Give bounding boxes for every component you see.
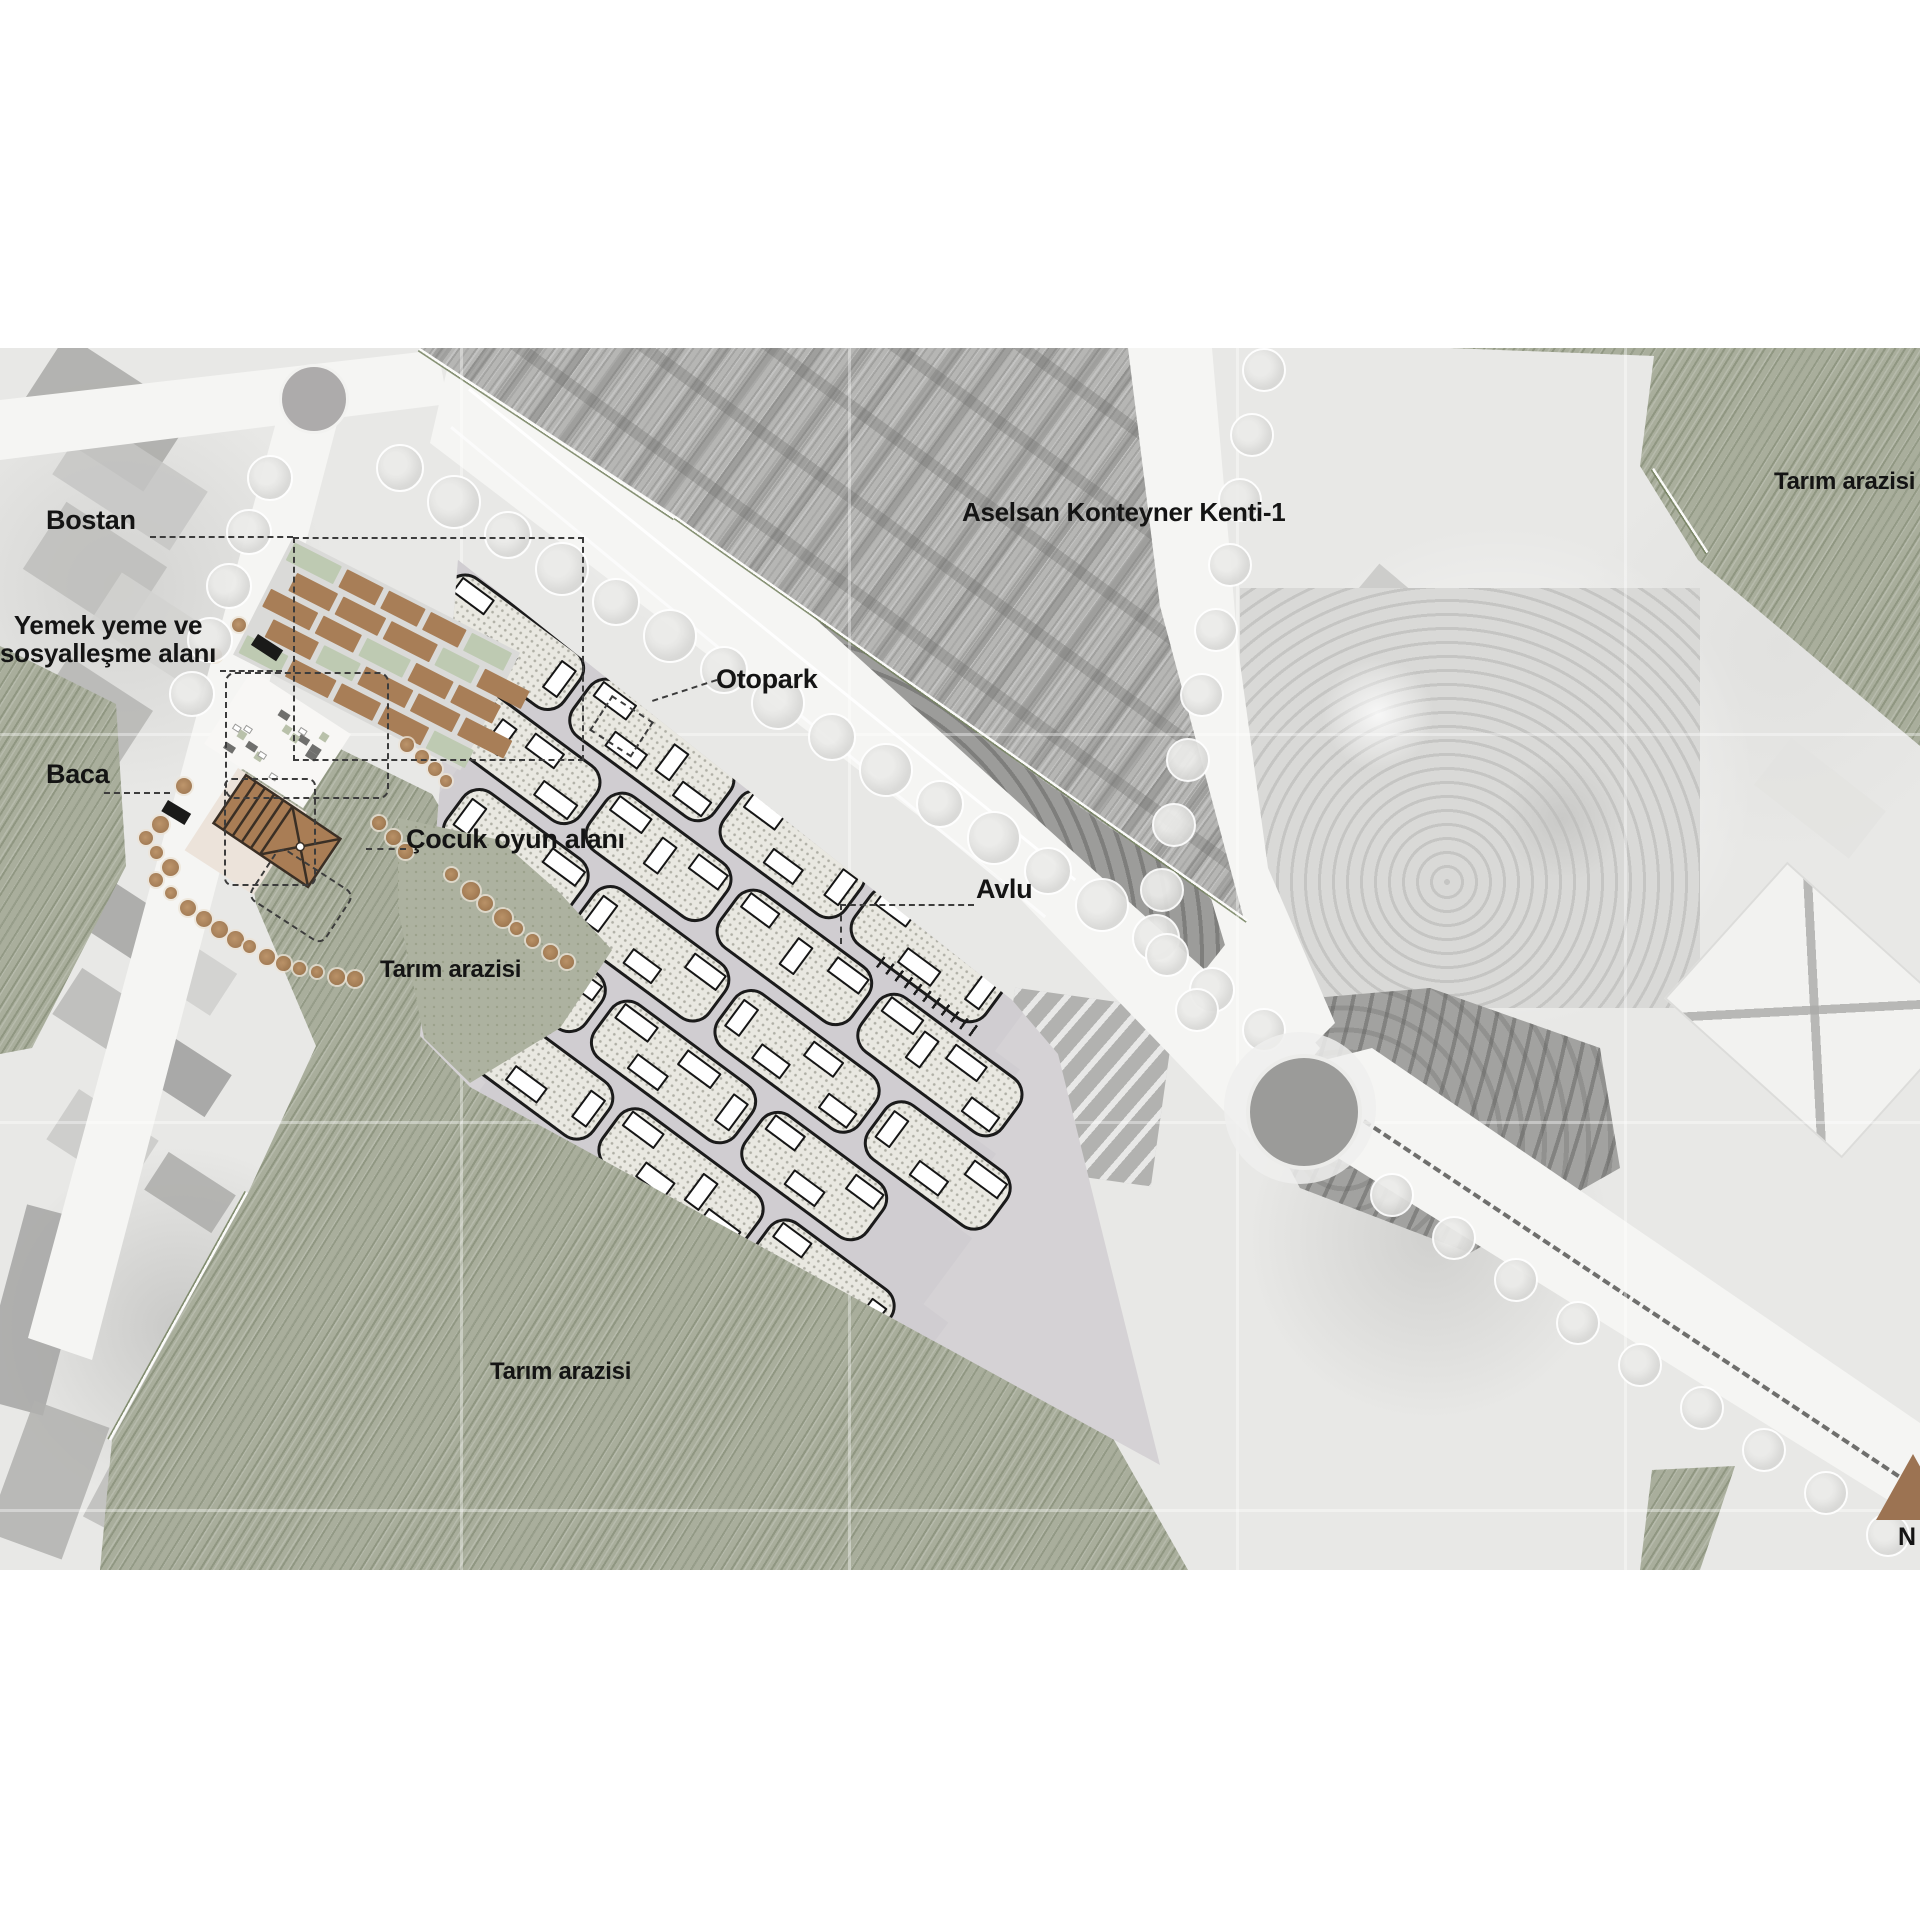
housing-building xyxy=(713,1093,748,1132)
housing-building xyxy=(961,1096,1001,1133)
street-tree-icon xyxy=(859,743,913,797)
tree-icon xyxy=(462,882,480,900)
label-tarim-arazisi-south: Tarım arazisi xyxy=(490,1359,631,1384)
street-tree-icon xyxy=(1242,348,1286,392)
tree-icon xyxy=(526,934,539,947)
street-tree-icon xyxy=(1230,413,1274,457)
street-tree-icon xyxy=(1556,1301,1600,1345)
label-baca: Baca xyxy=(46,760,109,789)
label-tarim-arazisi-west: Tarım arazisi xyxy=(380,957,521,982)
housing-building xyxy=(905,1030,940,1069)
street-tree-icon xyxy=(643,609,697,663)
tree-icon xyxy=(386,830,401,845)
tree-icon xyxy=(494,909,512,927)
housing-building xyxy=(908,1159,949,1196)
tree-icon xyxy=(560,955,574,969)
street-tree-icon xyxy=(1152,803,1196,847)
masterplan-map: Bostan Yemek yeme ve sosyalleşme alanı B… xyxy=(0,348,1920,1570)
label-bostan: Bostan xyxy=(46,506,136,535)
tree-icon xyxy=(510,922,523,935)
street-tree-icon xyxy=(247,455,293,501)
baca-leader-line xyxy=(104,792,170,794)
bostan-leader-line xyxy=(150,536,293,538)
housing-building xyxy=(622,948,662,985)
social-area-leader-line xyxy=(220,670,282,672)
street-tree-icon xyxy=(1432,1216,1476,1260)
housing-building xyxy=(778,937,813,976)
street-tree-icon xyxy=(1140,868,1184,912)
tree-icon xyxy=(276,956,291,971)
label-avlu: Avlu xyxy=(976,875,1032,904)
label-cocuk-oyun-alani: Çocuk oyun alanı xyxy=(406,825,625,854)
housing-building xyxy=(683,1172,718,1211)
label-otopark: Otopark xyxy=(716,665,817,694)
tree-icon xyxy=(152,816,169,833)
roundabout-east xyxy=(1246,1054,1362,1170)
tree-icon xyxy=(259,949,275,965)
street-tree-icon xyxy=(206,563,252,609)
avlu-leader-line-vertical xyxy=(840,904,842,944)
street-tree-icon xyxy=(1194,608,1238,652)
street-tree-icon xyxy=(376,444,424,492)
street-tree-icon xyxy=(1208,543,1252,587)
housing-building xyxy=(627,1053,670,1091)
roundabout-northwest xyxy=(279,364,349,434)
street-tree-icon xyxy=(1618,1343,1662,1387)
housing-building xyxy=(504,1065,547,1104)
housing-building xyxy=(642,836,677,875)
label-aselsan-konteyner-kenti: Aselsan Konteyner Kenti-1 xyxy=(962,499,1285,527)
label-yemek-yeme: Yemek yeme ve sosyalleşme alanı xyxy=(0,612,230,667)
street-tree-icon xyxy=(1175,988,1219,1032)
tree-icon xyxy=(428,762,442,776)
playground-leader-line xyxy=(366,848,406,850)
street-tree-icon xyxy=(169,671,215,717)
label-north: N xyxy=(1898,1524,1916,1551)
construction-area xyxy=(1240,588,1700,1008)
street-tree-icon xyxy=(967,811,1021,865)
housing-building xyxy=(671,780,712,817)
street-tree-icon xyxy=(1804,1471,1848,1515)
street-tree-icon xyxy=(1075,878,1129,932)
street-tree-icon xyxy=(1145,933,1189,977)
housing-building xyxy=(724,999,759,1038)
street-tree-icon xyxy=(916,780,964,828)
street-tree-icon xyxy=(1742,1428,1786,1472)
street-tree-icon xyxy=(1370,1173,1414,1217)
street-tree-icon xyxy=(1166,738,1210,782)
tree-icon xyxy=(232,618,246,632)
housing-building xyxy=(818,1092,858,1129)
label-tarim-arazisi-northeast: Tarım arazisi xyxy=(1774,469,1915,494)
avlu-leader-line xyxy=(840,904,974,906)
street-tree-icon xyxy=(1680,1386,1724,1430)
tree-icon xyxy=(196,911,212,927)
tree-icon xyxy=(150,846,163,859)
housing-building xyxy=(751,1043,791,1080)
housing-building xyxy=(654,743,689,782)
street-tree-icon xyxy=(427,475,481,529)
housing-building xyxy=(874,1110,909,1149)
tree-icon xyxy=(165,887,177,899)
street-tree-icon xyxy=(226,509,272,555)
housing-building xyxy=(784,1169,827,1207)
housing-building xyxy=(762,847,804,885)
street-tree-icon xyxy=(1180,673,1224,717)
street-tree-icon xyxy=(1494,1258,1538,1302)
site-plan-page: Bostan Yemek yeme ve sosyalleşme alanı B… xyxy=(0,0,1920,1920)
housing-building xyxy=(570,1089,605,1128)
street-tree-icon xyxy=(808,713,856,761)
